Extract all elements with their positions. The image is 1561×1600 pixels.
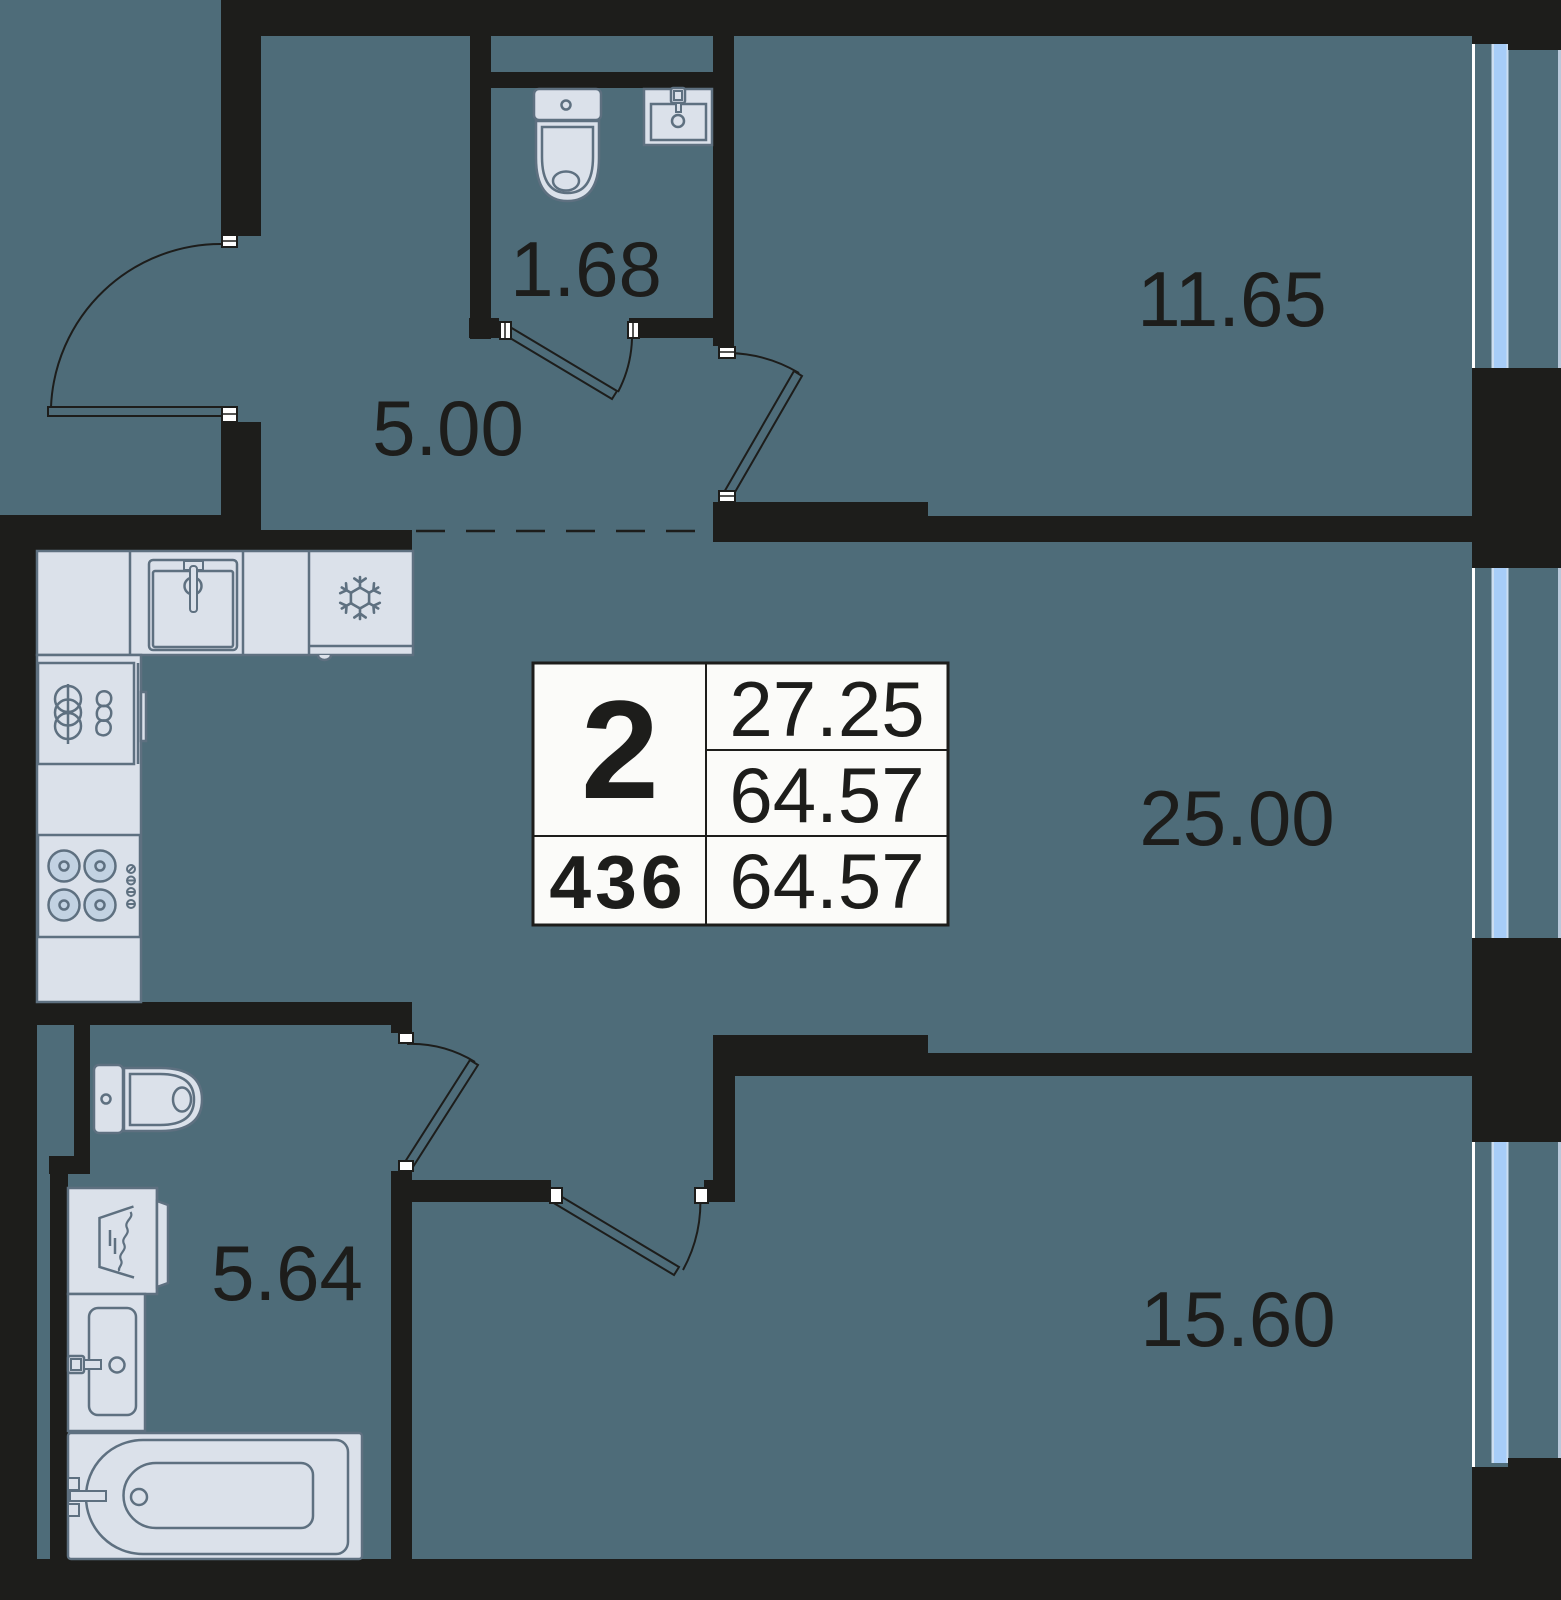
svg-text:25.00: 25.00 [1139,774,1334,862]
svg-text:5.64: 5.64 [211,1229,363,1317]
svg-text:436: 436 [549,840,686,924]
svg-text:27.25: 27.25 [729,665,924,753]
svg-text:2: 2 [581,671,659,828]
svg-text:11.65: 11.65 [1137,255,1326,343]
svg-text:5.00: 5.00 [372,384,524,472]
svg-text:15.60: 15.60 [1140,1275,1335,1363]
svg-text:64.57: 64.57 [729,837,924,925]
svg-text:1.68: 1.68 [510,225,662,313]
svg-text:64.57: 64.57 [729,751,924,839]
